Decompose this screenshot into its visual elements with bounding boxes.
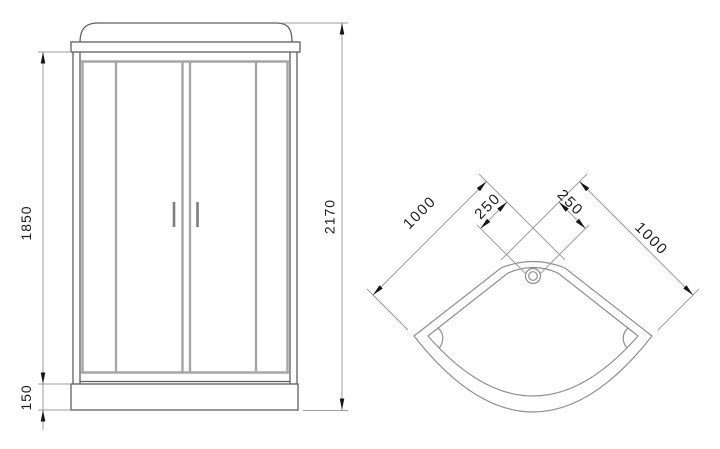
tray-corner-fillet-left <box>438 328 443 349</box>
arrow-icon <box>477 180 488 191</box>
drain-icon-inner <box>529 272 538 281</box>
arrow-icon <box>41 52 46 64</box>
front-view-panels <box>81 62 289 373</box>
tray-inner-outline <box>428 268 638 397</box>
top-cap-rail <box>71 42 300 52</box>
arrow-icon <box>578 180 589 191</box>
arrow-icon <box>576 219 587 230</box>
arrow-icon <box>340 399 345 411</box>
front-frame <box>71 23 300 410</box>
tray-plan <box>414 262 652 413</box>
arrow-icon <box>371 285 382 296</box>
top-view: 1000 250 250 1000 <box>367 174 699 412</box>
arrow-icon <box>340 23 345 35</box>
ext-line-right-drain <box>540 225 589 274</box>
drain-icon <box>526 269 541 284</box>
dim-label-total-height: 2170 <box>322 199 338 234</box>
dim-line-right-1000 <box>580 182 694 296</box>
dim-label-tray-height: 150 <box>18 384 34 410</box>
ext-line-left-drain <box>477 225 526 274</box>
dim-label-left-side: 1000 <box>400 193 440 233</box>
arrow-icon <box>683 285 694 296</box>
dim-label-right-offset: 250 <box>554 186 587 219</box>
arrow-icon <box>41 410 46 422</box>
arrow-icon <box>41 373 46 385</box>
front-dimensions <box>38 23 348 430</box>
tray-corner-fillet-right <box>623 328 628 349</box>
dim-label-glass-height: 1850 <box>18 205 34 240</box>
roof-dome <box>80 23 292 42</box>
front-dimension-arrows <box>41 23 345 422</box>
door-handles <box>174 202 198 227</box>
base-tray-front <box>71 384 298 410</box>
top-dimension-labels: 1000 250 250 1000 <box>400 186 671 258</box>
front-view: 1850 150 2170 <box>18 23 348 430</box>
top-dimensions <box>367 174 699 330</box>
technical-drawing: 1850 150 2170 <box>0 0 720 449</box>
